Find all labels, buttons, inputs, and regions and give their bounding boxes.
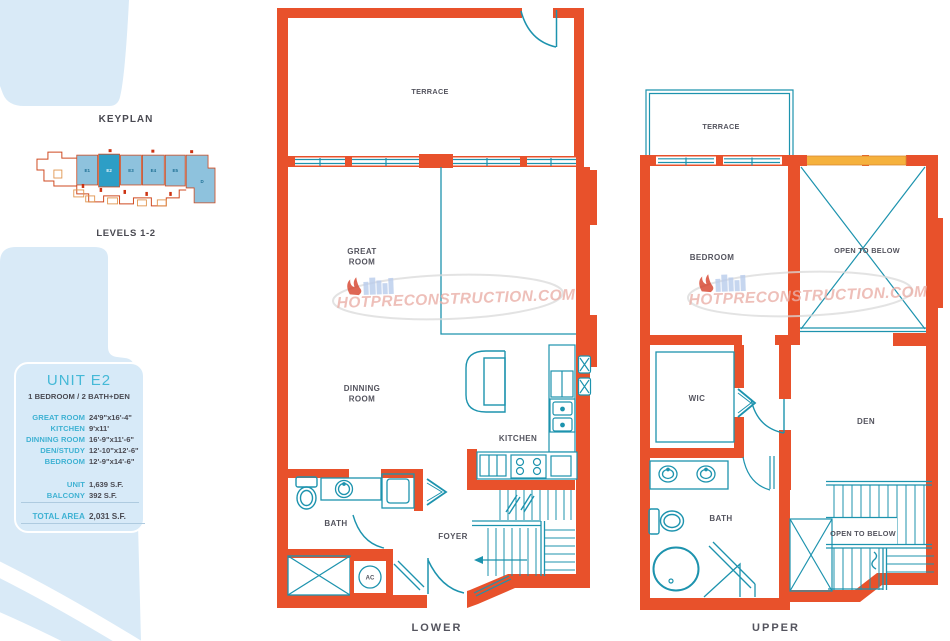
unit-title: UNIT E2 [21,372,137,389]
room-dimension-row: DEN/STUDY 12'-10"x12'-6" [21,445,137,456]
room-dim: 12'-10"x12'-6" [89,445,139,456]
dinning-room-label: ROOM [349,395,376,404]
keyplan-drawing: E1 E2 E3 E4 E5 D [34,146,218,214]
keyplan-unit-label: E3 [128,168,134,173]
room-label: BEDROOM [21,456,85,467]
upper-bedroom-windows [656,155,782,166]
room-dim: 12'-9"x14'-6" [89,456,134,467]
sofa [466,351,505,412]
bath-label: BATH [709,514,732,523]
area-value: 392 S.F. [89,490,117,501]
upper-toilet [649,509,684,534]
keyplan-unit-label: E5 [172,168,178,173]
bathtub [654,548,699,591]
great-room-label: ROOM [349,258,376,267]
room-label: GREAT ROOM [21,412,85,423]
upper-yellow-window [806,156,906,165]
room-label: DINNING ROOM [21,434,85,445]
kitchen-label: KITCHEN [499,434,537,443]
open-to-below-bottom-box [790,519,832,591]
bath-door-arc [353,515,384,548]
shower [288,556,350,595]
room-dimension-row: BEDROOM 12'-9"x14'-6" [21,456,137,467]
room-dimension-row: DINNING ROOM 16'-9"x11'-6" [21,434,137,445]
area-list: UNIT 1,639 S.F. BALCONY 392 S.F. [21,479,139,503]
area-label: UNIT [21,479,85,490]
upper-floor-plan: TERRACE BEDROOM OPEN TO BELOW WIC DEN BA… [630,80,948,641]
keyplan-title: KEYPLAN [34,114,218,125]
toilet [296,477,317,509]
lower-greatroom-divider [441,167,576,334]
great-room-label: GREAT [347,247,376,256]
terrace-label: TERRACE [702,122,739,131]
room-dimension-row: KITCHEN 9'x11' [21,423,137,434]
dinning-room-label: DINNING [344,384,381,393]
bedroom-hall-door [751,399,784,433]
room-dimension-row: GREAT ROOM 24'9"x16'-4" [21,412,137,423]
area-row: BALCONY 392 S.F. [21,490,139,503]
bath-label: BATH [324,519,347,528]
floorplan-sheet: KEYPLAN E1 E2 E3 E4 E5 D [0,0,950,641]
wic-label: WIC [689,394,706,403]
ac-closet: AC [352,559,388,595]
room-dimension-list: GREAT ROOM 24'9"x16'-4" KITCHEN 9'x11' D… [21,412,137,467]
bath-door [743,456,774,490]
unit-subtitle: 1 BEDROOM / 2 BATH+DEN [21,392,137,401]
sidebar-background [0,0,240,641]
lower-walls [277,8,597,608]
total-area-label: TOTAL AREA [21,511,85,522]
room-dim: 24'9"x16'-4" [89,412,132,423]
keyplan-unit-label: E4 [151,168,157,173]
area-value: 1,639 S.F. [89,479,123,490]
ac-label: AC [366,576,375,582]
keyplan-levels: LEVELS 1-2 [34,228,218,239]
closet-bifold-door [427,479,446,505]
lower-caption: LOWER [412,622,463,634]
bedroom-label: BEDROOM [690,253,735,262]
total-area-row: TOTAL AREA 2,031 S.F. [21,511,145,524]
total-area-value: 2,031 S.F. [89,511,126,522]
upper-window-post [800,155,807,166]
keyplan: KEYPLAN E1 E2 E3 E4 E5 D [34,114,218,239]
keyplan-unit-label: E2 [106,168,112,173]
room-dim: 9'x11' [89,423,109,434]
room-label: KITCHEN [21,423,85,434]
entry-door [428,558,464,594]
lower-terrace-door [521,10,557,47]
room-dim: 16'-9"x11'-6" [89,434,134,445]
unit-info-panel: UNIT E2 1 BEDROOM / 2 BATH+DEN GREAT ROO… [14,362,145,533]
terrace-label: TERRACE [411,87,448,96]
open-to-below-label: OPEN TO BELOW [834,246,900,255]
upper-shower [704,542,755,597]
den-label: DEN [857,417,875,426]
lower-floor-plan: AC TERRACE GREAT ROOM DINNING RO [270,0,615,641]
double-sink-vanity [650,461,728,489]
sidebar-top-shape [0,0,129,106]
linen-closet [382,474,414,508]
room-label: DEN/STUDY [21,445,85,456]
upper-caption: UPPER [752,622,800,634]
area-label: BALCONY [21,490,85,501]
open-to-below-label: OPEN TO BELOW [830,529,896,538]
hall-door [394,561,424,590]
area-row: UNIT 1,639 S.F. [21,479,139,490]
foyer-label: FOYER [438,532,468,541]
bath-sink [321,478,381,500]
keyplan-unit-label: E1 [84,168,90,173]
upper-walls [640,155,943,610]
